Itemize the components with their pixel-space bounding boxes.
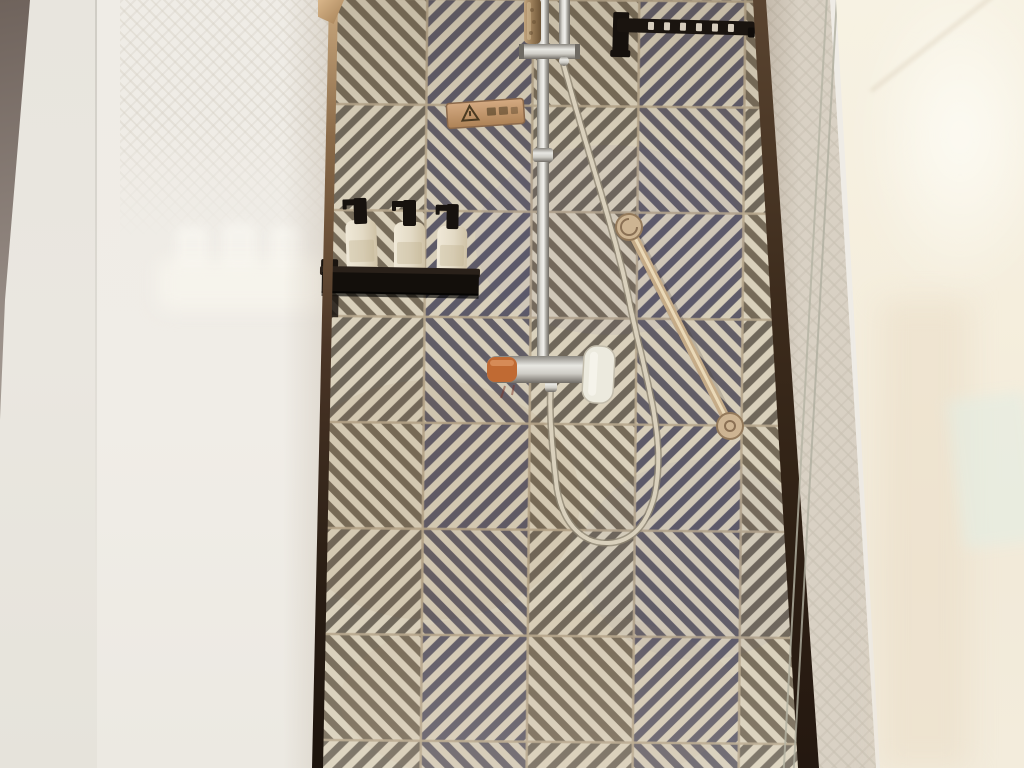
caution-sign xyxy=(446,98,525,128)
riser-bracket xyxy=(521,44,579,59)
sign-glyph xyxy=(511,107,518,114)
towel-hook xyxy=(648,22,654,30)
tile-shading xyxy=(300,0,820,768)
grab-bar-flange xyxy=(717,413,743,439)
hand-shower xyxy=(524,0,541,44)
sign-glyph xyxy=(487,107,497,116)
towel-hook xyxy=(712,23,718,31)
sign-glyph xyxy=(499,106,509,115)
towel-hook xyxy=(696,23,702,31)
towel-hook xyxy=(664,22,670,30)
riser-clamp xyxy=(533,148,553,162)
towel-hook xyxy=(728,24,734,32)
amenity-bottles xyxy=(342,197,467,276)
towel-hook xyxy=(680,23,686,31)
bathroom-shower-photo xyxy=(0,0,1024,768)
mixer-paddle-handle xyxy=(582,345,616,404)
hose-connector xyxy=(559,56,569,66)
glass-sheen xyxy=(880,300,970,768)
glass-sheen xyxy=(860,0,1024,300)
grab-bar-flange xyxy=(616,214,642,240)
